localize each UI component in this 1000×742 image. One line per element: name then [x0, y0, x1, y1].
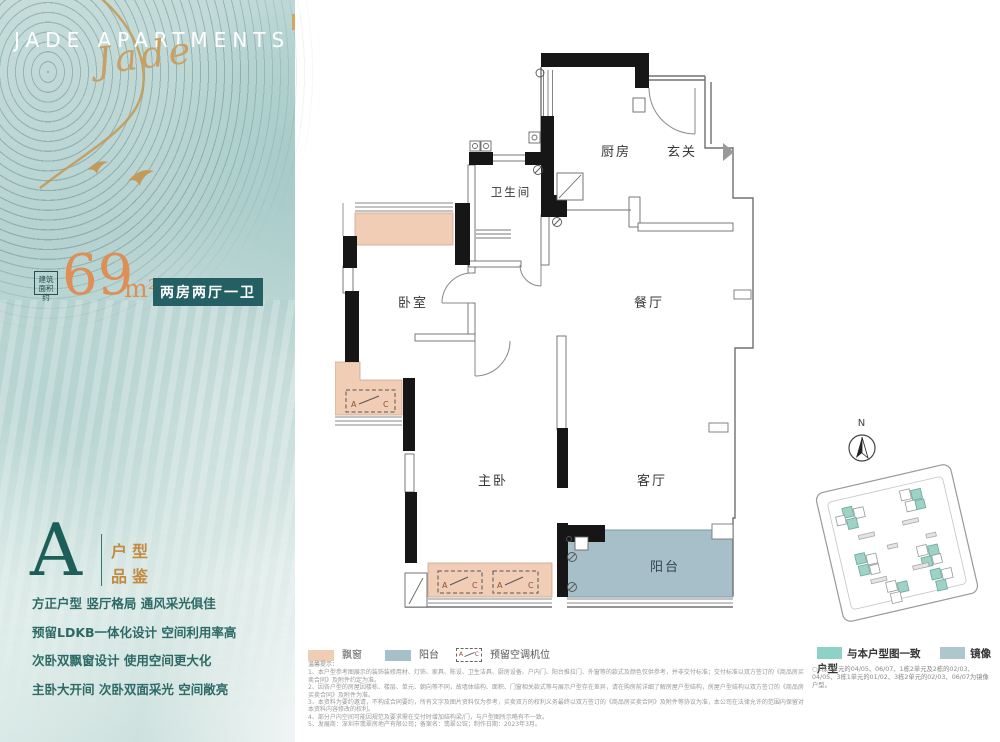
bedroom-door-arc — [442, 273, 472, 303]
room-label-dining: 餐厅 — [634, 295, 664, 311]
room-label-living: 客厅 — [637, 473, 667, 489]
note-line: 3、本资料为要约邀请，不构成合同要约，所有文字及图片资料仅为参考，买卖双方的权利… — [308, 699, 804, 714]
legend-ac: AC预留空调机位 — [456, 646, 550, 662]
poster-page: JADE APARTMENTS Jade 建筑 面积约 69 m² 两房两厅一卫… — [0, 0, 1000, 742]
svg-text:C: C — [383, 400, 389, 409]
bay-swatch — [308, 650, 334, 661]
gold-edge-accent — [292, 14, 295, 30]
unit-letter: A — [30, 512, 82, 588]
room-label-master: 主卧 — [478, 474, 508, 489]
doors — [442, 88, 695, 376]
master-door-arc — [475, 341, 510, 376]
note-line: 5、发展商：深圳市翡翠房地产有限公司；备案名：翡翠公馆；制作日期：2023年3月… — [308, 721, 804, 728]
legend-balcony: 阳台 — [385, 646, 439, 661]
mirror-unit-swatch — [940, 647, 965, 659]
entry-door-arc — [649, 88, 695, 134]
svg-text:C: C — [528, 581, 534, 590]
svg-text:A: A — [442, 581, 448, 590]
compass-n-label: N — [840, 418, 884, 429]
svg-text:A: A — [351, 400, 357, 409]
drain-symbols — [534, 69, 577, 592]
bay-window-master — [428, 563, 552, 597]
area-value: 69 — [62, 246, 133, 306]
disclaimer-notes: 温馨提示： 1、本户型参考图展示的装饰装修用材、灯饰、家具、陈设、卫生洁具、厨房… — [308, 661, 804, 729]
feature-item: 次卧双飘窗设计 使用空间更大化 — [32, 650, 282, 669]
floor-plan: AC AC AC 厨房 玄关 卫生间 卧室 餐厅 主卧 客厅 阳台 — [335, 40, 775, 640]
room-label-foyer: 玄关 — [667, 145, 697, 160]
notes-title: 温馨提示： — [308, 661, 804, 668]
structural-walls — [343, 53, 649, 597]
site-note: ○1栋1单元的04/05、06/07、1栋2单元及2栋的02/03、04/05、… — [812, 666, 994, 690]
unit-tag-line1: 户型 — [111, 538, 153, 562]
room-label-kitchen: 厨房 — [601, 144, 631, 160]
ac-reserved-boxes: AC AC AC — [346, 390, 538, 593]
swallow-bird-icon — [128, 170, 154, 186]
svg-text:A: A — [497, 581, 503, 590]
legend-bay: 飘窗 — [308, 646, 362, 661]
bath-door-arc — [520, 265, 541, 286]
layout-chip: 两房两厅一卫 — [153, 278, 263, 306]
swallow-bird-icon — [88, 161, 108, 174]
note-line: 2、因各户型的房屋因楼栋、楼层、单元、朝向等不同，故墙体结构、面积、门窗相关款式… — [308, 684, 804, 699]
right-wall-windows — [709, 290, 751, 539]
same-unit-swatch — [817, 647, 842, 659]
svg-text:C: C — [472, 581, 478, 590]
ac-legend-icon: AC — [456, 648, 482, 662]
bay-window-bedroom-top — [355, 213, 453, 245]
feature-item: 主卧大开间 次卧双面采光 空间敞亮 — [32, 679, 282, 698]
room-label-bath: 卫生间 — [491, 185, 532, 199]
room-label-bedroom: 卧室 — [398, 295, 428, 311]
note-line: 1、本户型参考图展示的装饰装修用材、灯饰、家具、陈设、卫生洁具、厨房设备、户内门… — [308, 669, 804, 684]
feature-item: 预留LDKB一体化设计 空间利用率高 — [32, 622, 282, 641]
feature-item: 方正户型 竖厅格局 通风采光俱佳 — [32, 593, 282, 612]
feature-list: 方正户型 竖厅格局 通风采光俱佳 预留LDKB一体化设计 空间利用率高 次卧双飘… — [32, 593, 282, 707]
unit-divider — [101, 534, 102, 586]
sidebar-watercolor-panel: JADE APARTMENTS Jade 建筑 面积约 69 m² 两房两厅一卫… — [0, 0, 295, 742]
site-plan — [795, 455, 1000, 630]
area-prefix-box: 建筑 面积约 — [34, 271, 58, 295]
bay-window-bedroom-left — [335, 362, 402, 415]
room-label-balcony: 阳台 — [650, 560, 680, 575]
unit-tag-line2: 品鉴 — [111, 563, 153, 587]
balcony-swatch — [385, 650, 411, 661]
